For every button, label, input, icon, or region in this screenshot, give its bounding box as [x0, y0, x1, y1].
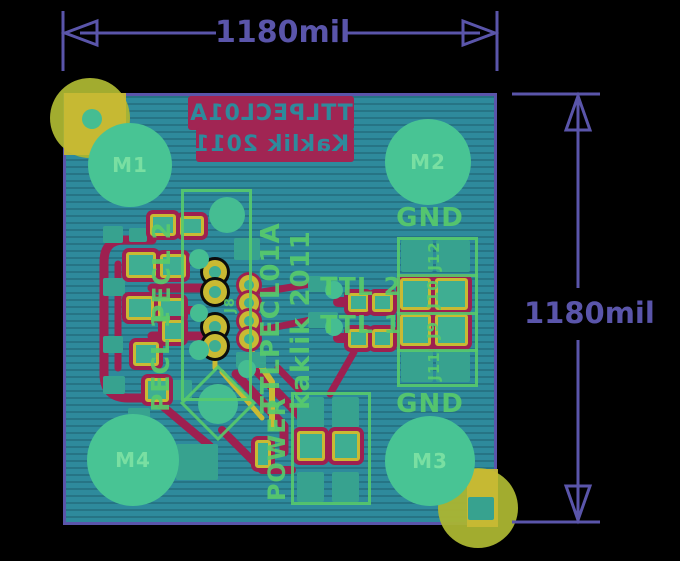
dim-label-right: 1180mil [524, 296, 634, 330]
pcb-render-canvas: M1M2M3M4GNDGNDTTL 2TTL 1PECL 2PECL 1TTLP… [0, 0, 680, 561]
dim-label-top: 1180mil [215, 15, 345, 50]
dimension-annotations [0, 0, 680, 561]
